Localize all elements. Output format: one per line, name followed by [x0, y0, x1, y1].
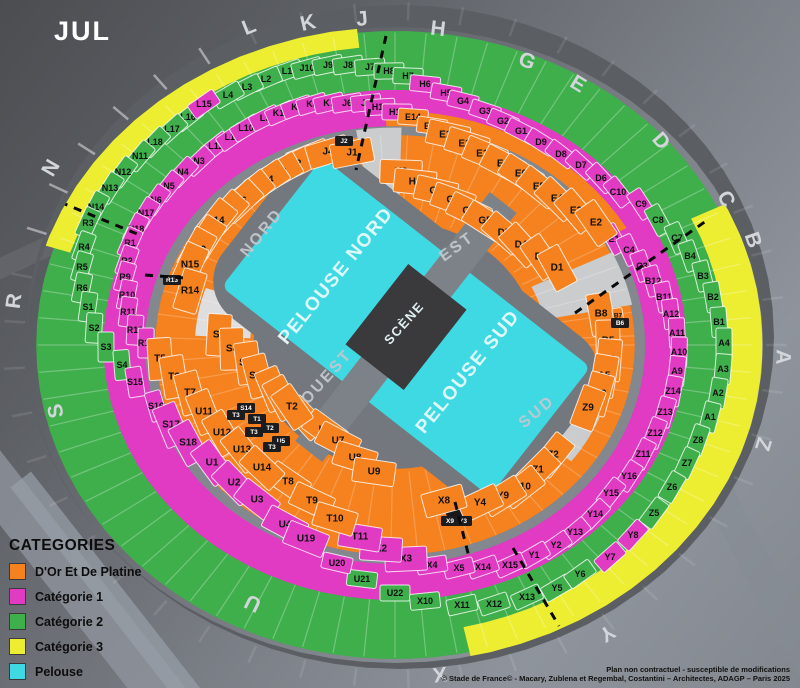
section-label: X14 — [475, 562, 491, 572]
legend-items: D'Or Et De PlatineCatégorie 1Catégorie 2… — [9, 563, 141, 680]
section-label: N11 — [132, 151, 148, 161]
svg-text:T1: T1 — [253, 416, 261, 423]
tribune-letter-H: H — [429, 17, 447, 42]
seating-plan: L1L2L3L4J10J9J8J7H8H7L16L17L18N11N12N13N… — [0, 0, 800, 688]
tribune-letter-Y: Y — [595, 620, 619, 647]
section-label: S15 — [127, 377, 143, 387]
section-label: Y7 — [604, 552, 615, 562]
section-label: B1 — [713, 317, 725, 327]
section-label: U2 — [228, 478, 241, 489]
section-label: G1 — [515, 126, 527, 136]
legend-item: Pelouse — [9, 663, 141, 680]
section-label: L2 — [261, 74, 272, 84]
section-label: B8 — [595, 309, 608, 320]
section-label: H6 — [419, 79, 431, 89]
footer-notes: Plan non contractuel - susceptible de mo… — [441, 665, 790, 683]
legend-item-label: Catégorie 3 — [35, 640, 103, 654]
legend-title: CATEGORIES — [9, 537, 141, 555]
section-label: Y5 — [551, 583, 562, 593]
legend-item-label: Catégorie 2 — [35, 615, 103, 629]
sign-B6: B6 — [611, 318, 629, 328]
tribune-letter-Z: Z — [750, 434, 776, 453]
section-label: U21 — [354, 574, 371, 584]
section-label: X4 — [426, 560, 437, 570]
section-label: C8 — [652, 215, 664, 225]
section-label: Y2 — [550, 540, 561, 550]
section-label: Y13 — [567, 527, 583, 537]
legend-item-label: Catégorie 1 — [35, 590, 103, 604]
sign-T3: T3 — [245, 427, 263, 437]
tribune-letter-J: J — [355, 7, 369, 31]
sign-T3: T3 — [227, 410, 245, 420]
svg-text:B6: B6 — [616, 320, 625, 327]
section-label: T11 — [352, 532, 369, 543]
section-label: Z13 — [657, 407, 673, 417]
sign-T1: T1 — [248, 414, 266, 424]
section-label: R3 — [82, 218, 94, 228]
tribune-letter-A: A — [771, 349, 795, 365]
section-label: Y1 — [528, 550, 539, 560]
section-label: R5 — [76, 262, 88, 272]
footer-credits: © Stade de France© - Macary, Zublena et … — [441, 674, 790, 683]
section-label: Z9 — [582, 403, 594, 414]
section-label: C9 — [635, 199, 647, 209]
section-label: D6 — [595, 173, 607, 183]
section-label: C10 — [610, 187, 627, 197]
sign-T3: T3 — [263, 442, 281, 452]
svg-text:T3: T3 — [232, 412, 240, 419]
section-label: X8 — [438, 496, 451, 507]
section-label: Z11 — [635, 449, 650, 459]
legend-item: D'Or Et De Platine — [9, 563, 141, 580]
section-label: D7 — [575, 160, 587, 170]
legend-item: Catégorie 2 — [9, 613, 141, 630]
legend-swatch — [9, 663, 26, 680]
svg-text:T2: T2 — [266, 425, 274, 432]
section-label: Y14 — [587, 509, 603, 519]
svg-text:T3: T3 — [268, 444, 276, 451]
section-label: T8 — [282, 477, 294, 488]
section-label: D9 — [535, 137, 547, 147]
section-label: S3 — [100, 342, 111, 352]
footer-disclaimer: Plan non contractuel - susceptible de mo… — [441, 665, 790, 674]
section-label: Z14 — [665, 386, 681, 396]
section-label: E2 — [590, 218, 603, 229]
event-title: JUL — [54, 16, 111, 47]
section-label: L1 — [282, 66, 293, 76]
section-label: S2 — [88, 323, 99, 333]
section-label: U9 — [368, 467, 381, 478]
section-label: U19 — [297, 534, 316, 545]
legend-swatch — [9, 613, 26, 630]
legend-item-label: D'Or Et De Platine — [35, 565, 141, 579]
section-label: Z5 — [649, 508, 660, 518]
section-label: X5 — [453, 563, 464, 573]
section-label: D8 — [555, 149, 567, 159]
section-label: B4 — [684, 251, 696, 261]
section-label: B2 — [707, 292, 719, 302]
section-label: D1 — [551, 263, 564, 274]
section-label: Z8 — [693, 435, 704, 445]
section-U22[interactable]: U22 — [380, 585, 410, 601]
section-label: Y8 — [627, 530, 638, 540]
section-label: X13 — [519, 592, 535, 602]
section-label: A2 — [712, 388, 724, 398]
sign-J2: J2 — [335, 136, 353, 146]
section-label: J9 — [323, 60, 333, 70]
section-label: L15 — [196, 99, 212, 109]
section-label: X15 — [502, 560, 518, 570]
section-label: B3 — [697, 271, 709, 281]
section-label: T2 — [286, 402, 298, 413]
section-label: U3 — [251, 495, 264, 506]
section-label: Z7 — [682, 458, 693, 468]
section-X10[interactable]: X10 — [409, 592, 440, 611]
section-label: G4 — [457, 96, 469, 106]
section-label: X10 — [417, 596, 433, 606]
section-label: A4 — [718, 338, 730, 348]
section-U21[interactable]: U21 — [346, 569, 378, 589]
section-label: A3 — [717, 364, 729, 374]
legend-swatch — [9, 588, 26, 605]
svg-text:J2: J2 — [340, 138, 348, 145]
section-label: S18 — [179, 438, 197, 449]
svg-text:X9: X9 — [446, 518, 454, 525]
legend-swatch — [9, 563, 26, 580]
section-label: R14 — [181, 286, 200, 297]
section-label: A9 — [671, 366, 683, 376]
section-label: Z6 — [667, 482, 678, 492]
legend-item: Catégorie 3 — [9, 638, 141, 655]
section-label: S1 — [82, 302, 93, 312]
section-label: U1 — [206, 458, 219, 469]
section-label: Y4 — [474, 498, 487, 509]
section-label: X11 — [454, 600, 470, 610]
tribune-letter-N: N — [37, 156, 65, 181]
section-label: U22 — [387, 588, 404, 598]
section-label: J1 — [346, 148, 358, 159]
section-label: Y6 — [574, 569, 585, 579]
legend: CATEGORIES D'Or Et De PlatineCatégorie 1… — [9, 537, 141, 688]
sign-Y3: Y3 — [454, 516, 472, 526]
section-label: N13 — [102, 183, 119, 193]
section-label: J8 — [343, 60, 353, 70]
section-label: X12 — [486, 599, 502, 609]
legend-item: Catégorie 1 — [9, 588, 141, 605]
section-label: T10 — [326, 514, 344, 525]
section-label: U20 — [329, 558, 346, 568]
section-label: Y16 — [621, 471, 637, 481]
section-label: Y15 — [603, 488, 619, 498]
sign-T2: T2 — [261, 423, 279, 433]
legend-swatch — [9, 638, 26, 655]
section-label: U14 — [253, 463, 272, 474]
section-label: T9 — [306, 496, 318, 507]
tribune-letter-R: R — [2, 292, 27, 310]
legend-item-label: Pelouse — [35, 665, 83, 679]
section-S3[interactable]: S3 — [98, 332, 114, 362]
svg-text:T3: T3 — [250, 429, 258, 436]
section-label: A1 — [704, 412, 716, 422]
section-label: Z12 — [647, 428, 663, 438]
section-label: L4 — [223, 90, 234, 100]
